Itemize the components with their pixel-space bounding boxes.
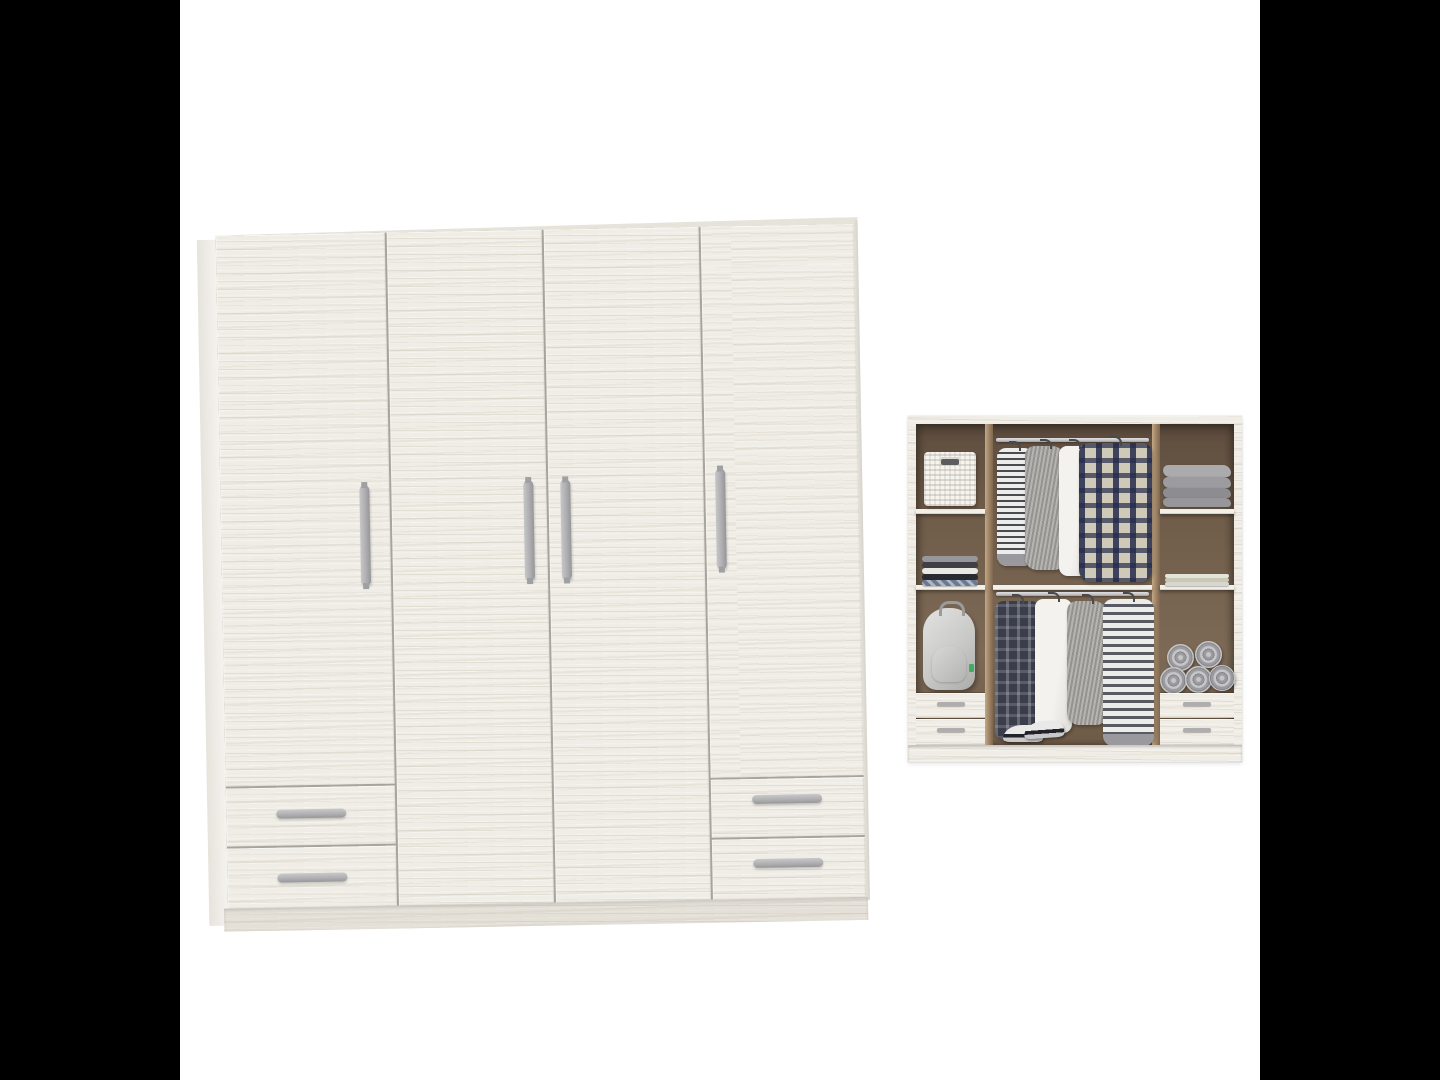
open-drawer-handle: [1183, 702, 1211, 706]
garment-grey-cardigan: [1067, 601, 1108, 725]
folded-blanket: [1163, 498, 1231, 507]
garment-striped-dress: [1103, 599, 1154, 746]
open-drawer-right-bottom: [1160, 719, 1234, 745]
wardrobe-open-view: [908, 416, 1242, 762]
towel-roll: [1185, 666, 1212, 693]
shelf-left-upper: [916, 509, 985, 514]
wardrobe-front: [216, 224, 866, 909]
backpack-tag: [969, 664, 974, 672]
backpack: [923, 608, 975, 690]
folded-shirt-patterned: [922, 580, 978, 586]
towel-roll: [1209, 665, 1235, 691]
letterbox-left: [0, 0, 180, 1080]
open-drawer-right-top: [1160, 693, 1234, 718]
drawer-right-top-handle: [752, 794, 822, 804]
folded-linens-stack: [1165, 574, 1229, 586]
shelf-center-divider: [993, 585, 1152, 590]
folded-blanket: [1163, 477, 1231, 488]
garment-plaid-shirt: [1079, 443, 1152, 582]
drawer-left-top-handle: [276, 808, 346, 818]
drawer-right-top: [711, 777, 865, 838]
folded-shirts-stack: [922, 556, 978, 586]
product-image-canvas: [0, 0, 1440, 1080]
folded-blankets-stack: [1163, 465, 1231, 507]
white-stage: [180, 0, 1260, 1080]
open-drawer-handle: [937, 728, 965, 732]
open-drawer-handle: [1183, 728, 1211, 732]
garment-dark-plaid-shirt: [995, 601, 1040, 739]
door-3-handle: [560, 479, 572, 580]
towel-roll: [1195, 641, 1222, 668]
folded-blanket: [1163, 488, 1231, 498]
wardrobe-closed-view: [197, 218, 871, 936]
door-4-handle: [715, 468, 727, 569]
drawer-right-bottom-handle: [753, 858, 823, 868]
wicker-basket: [924, 452, 976, 506]
drawer-right-bottom: [712, 837, 866, 900]
open-drawer-handle: [937, 702, 965, 706]
sneaker-right: [1023, 720, 1064, 740]
towel-roll: [1160, 667, 1187, 694]
drawer-left-bottom-handle: [277, 872, 347, 882]
open-wardrobe-plinth: [908, 745, 1242, 762]
folded-blanket: [1163, 465, 1231, 477]
partition-left: [985, 424, 993, 745]
door-2-handle: [523, 480, 535, 581]
sneakers: [1003, 721, 1065, 745]
folded-linen: [1165, 582, 1229, 586]
open-drawer-left-top: [916, 693, 985, 718]
letterbox-right: [1260, 0, 1440, 1080]
shelf-right-upper: [1160, 509, 1234, 514]
door-1-handle: [359, 485, 371, 586]
open-drawer-left-bottom: [916, 719, 985, 745]
